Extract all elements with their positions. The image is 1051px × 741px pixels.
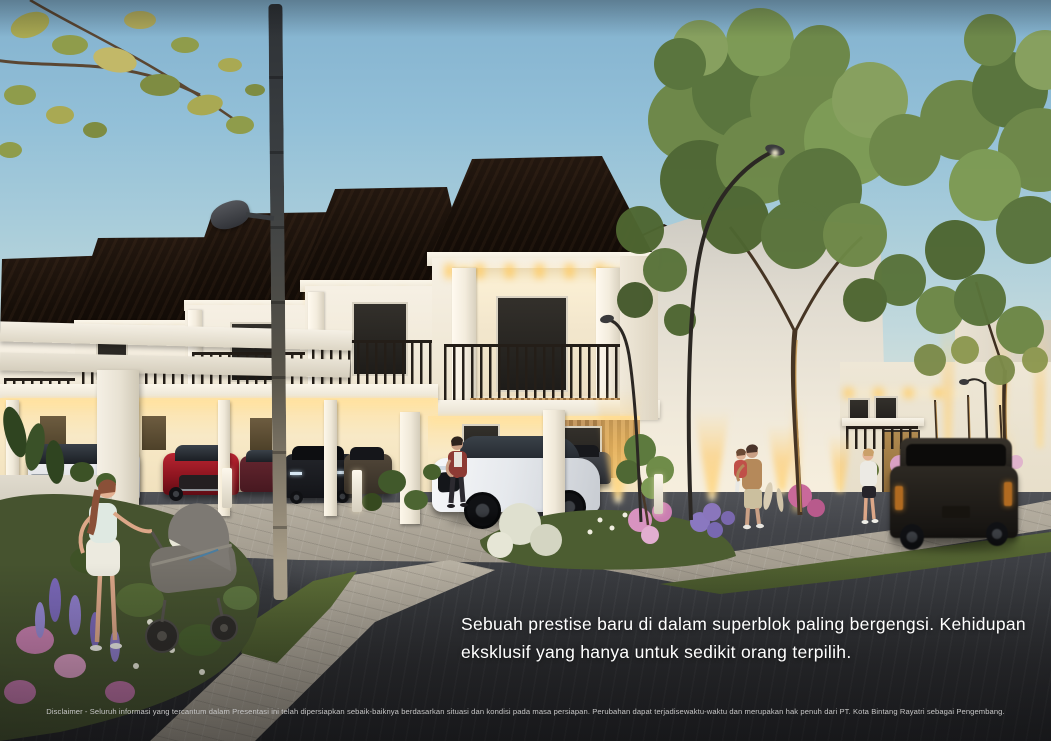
car-taillight [895,486,903,510]
presentation-slide: Sebuah prestise baru di dalam superblok … [0,0,1051,741]
tagline-line-1: Sebuah prestise baru di dalam superblok … [461,610,1041,638]
woman-in-hoodie [860,448,879,524]
light-bollard [654,474,663,514]
man-holding-child [734,444,764,529]
car-shadow [892,540,1016,550]
car-rear-glass [906,444,1006,468]
tagline-line-2: eksklusif yang hanya untuk sedikit orang… [461,638,1041,666]
light-bollard [352,470,362,512]
man-standing-by-car [447,436,468,508]
car-license-plate [942,506,970,518]
black-range-rover-car [890,438,1018,552]
car-taillight [1004,482,1012,506]
tagline: Sebuah prestise baru di dalam superblok … [461,610,1041,666]
light-bollard [222,468,232,508]
left-tree-branch [0,0,265,158]
disclaimer-text: Disclaimer - Seluruh informasi yang terc… [0,707,1051,716]
